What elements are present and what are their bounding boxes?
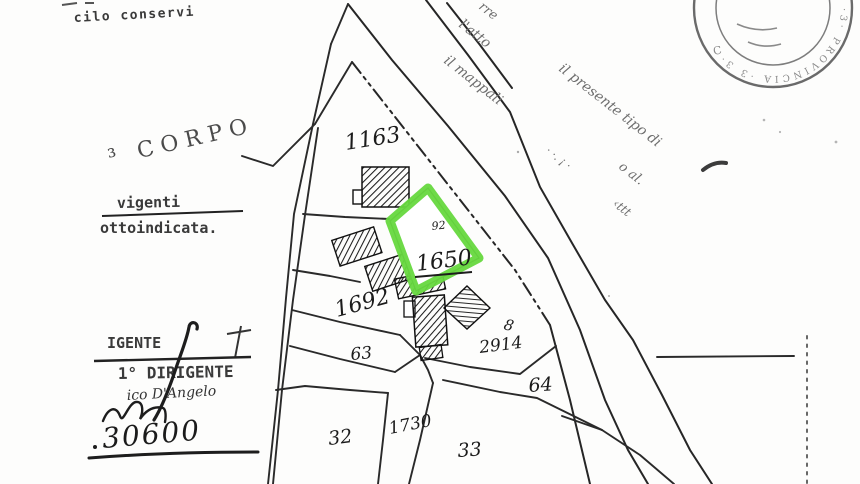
- dirigente-divider-line: [94, 357, 251, 361]
- vigenti-text: vigenti: [117, 193, 181, 212]
- diagonal-fragment-4: · ·. ¡ ·: [543, 144, 574, 172]
- building-hatched-diamond: [444, 286, 490, 329]
- sottoindicata-text: ottoindicata.: [100, 219, 217, 237]
- cadastral-map: C ·3· PROVINCIA ·3 3·: [0, 0, 860, 484]
- building-hatched-1: [362, 167, 409, 207]
- parcel-label-8: 8: [502, 315, 516, 335]
- diagonal-fragment-1: rre: [476, 0, 501, 24]
- parcel-label-33: 33: [457, 438, 483, 462]
- parcel-boundaries: [242, 4, 794, 484]
- handwritten-amount: 30600: [101, 413, 203, 455]
- cadastral-map-scan: C ·3· PROVINCIA ·3 3·: [0, 0, 860, 484]
- signature-name-text: ico D'Angelo: [126, 383, 216, 404]
- building-1-notch: [353, 190, 362, 204]
- margin-cross-mark: [227, 326, 251, 358]
- building-5-tail: [419, 345, 443, 361]
- parcel-label-1692: 1692: [332, 284, 393, 323]
- parcel-label-1163: 1163: [343, 122, 402, 155]
- parcel-label-92: 92: [431, 219, 446, 233]
- parcel-label-63: 63: [350, 343, 373, 365]
- right-horizontal-line: [657, 356, 794, 357]
- diagonal-fragment-6: o al.: [616, 159, 647, 188]
- building-hatched-2: [332, 227, 382, 266]
- diagonal-typed-text: rre l'atto il mappali · ·. ¡ · il presen…: [441, 0, 726, 219]
- corpo-stamp-text: ³ CORPO: [106, 113, 257, 171]
- road-edge-inner: [348, 4, 648, 484]
- left-boundary-inner: [273, 128, 318, 484]
- stamp-inner-scribbles: [737, 24, 781, 46]
- amount-leading-dot: [93, 445, 97, 449]
- parcel-64-wedge: [562, 416, 602, 430]
- apex-line: [331, 4, 348, 44]
- strip-join-b: [395, 355, 420, 372]
- left-margin-texts: cilo conservi ³ CORPO vigenti ottoindica…: [73, 5, 256, 455]
- parcel-1730-left: [378, 393, 388, 484]
- parcel-32-top: [276, 386, 388, 393]
- parcel-63-lower: [290, 346, 395, 372]
- road-edge-lower-left: [550, 325, 590, 484]
- diagonal-fragment-7: ‹ttt: [610, 196, 634, 219]
- parcel-1692-top: [293, 270, 360, 282]
- top-left-fragment: cilo conservi: [73, 5, 195, 26]
- parcel-label-2914: 2914: [477, 333, 523, 358]
- parcel-64-bottom-b: [602, 430, 674, 484]
- igente-text: IGENTE: [107, 334, 161, 352]
- round-office-stamp: C ·3· PROVINCIA ·3 3·: [694, 0, 852, 87]
- parcel-label-32: 32: [327, 425, 354, 450]
- left-boundary-outer: [268, 44, 331, 484]
- bold-pen-dash: [703, 163, 726, 170]
- parcel-label-1730: 1730: [387, 411, 433, 439]
- parcel-label-64: 64: [528, 373, 554, 397]
- parcel-1163-bottom: [303, 214, 389, 219]
- building-hatched-5: [412, 295, 447, 347]
- diagonal-fragment-5: il presente tipo di: [556, 61, 665, 151]
